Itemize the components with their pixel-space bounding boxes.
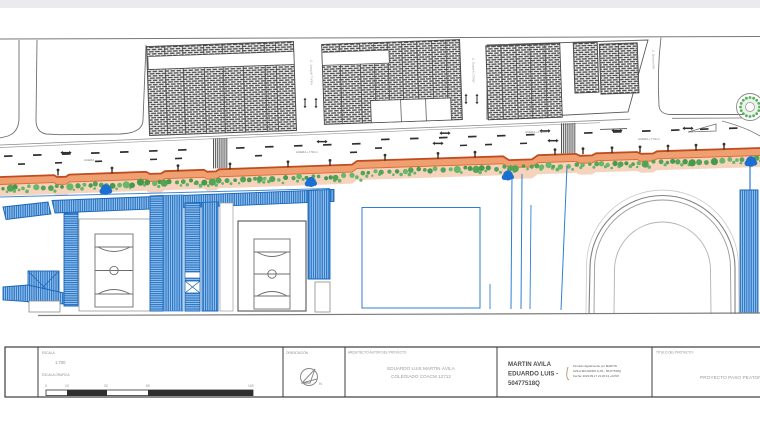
svg-text:ESCALA: ESCALA: [42, 351, 55, 355]
svg-text:50: 50: [146, 384, 150, 388]
svg-text:N: N: [319, 381, 322, 386]
svg-text:EDUARDO LUIS -: EDUARDO LUIS -: [508, 371, 558, 378]
svg-text:ARQUITECTO AUTOR DEL PROYECTO: ARQUITECTO AUTOR DEL PROYECTO: [348, 351, 407, 355]
svg-text:ACERA +7,50 m: ACERA +7,50 m: [638, 137, 660, 141]
svg-text:ACERA +7,50 m: ACERA +7,50 m: [525, 130, 547, 134]
svg-text:Fecha: 2023.09.17 21:20:13 +02: Fecha: 2023.09.17 21:20:13 +02'00': [573, 374, 620, 378]
svg-text:ORIENTACIÓN: ORIENTACIÓN: [286, 350, 309, 355]
svg-text:100: 100: [248, 384, 254, 388]
svg-text:50477518Q: 50477518Q: [508, 380, 540, 387]
svg-text:TÍTULO DEL PROYECTO: TÍTULO DEL PROYECTO: [656, 351, 694, 355]
svg-text:ACERA: ACERA: [84, 158, 94, 162]
svg-text:AVILA EDUARDO LUIS - 50477518Q: AVILA EDUARDO LUIS - 50477518Q: [573, 369, 622, 373]
svg-text:Firmado digitalmente por MARTI: Firmado digitalmente por MARTIN: [573, 364, 617, 368]
svg-text:1:700: 1:700: [55, 360, 66, 365]
svg-text:PROYECTO PASO PEATONAL: PROYECTO PASO PEATONAL: [700, 375, 760, 381]
svg-text:C. Benavente: C. Benavente: [651, 50, 656, 70]
svg-text:ESCALA GRAFICA: ESCALA GRAFICA: [42, 373, 70, 377]
svg-text:EDUARDO LUIS MARTÍN ÁVILA: EDUARDO LUIS MARTÍN ÁVILA: [387, 365, 455, 371]
svg-text:0: 0: [45, 384, 47, 388]
svg-text:ACERA +7,50 m: ACERA +7,50 m: [296, 150, 318, 154]
svg-text:COLEGIADO COACM 12712: COLEGIADO COACM 12712: [391, 374, 451, 379]
svg-text:MARTIN AVILA: MARTIN AVILA: [508, 361, 552, 368]
svg-text:10: 10: [65, 384, 69, 388]
svg-text:20: 20: [104, 384, 108, 388]
